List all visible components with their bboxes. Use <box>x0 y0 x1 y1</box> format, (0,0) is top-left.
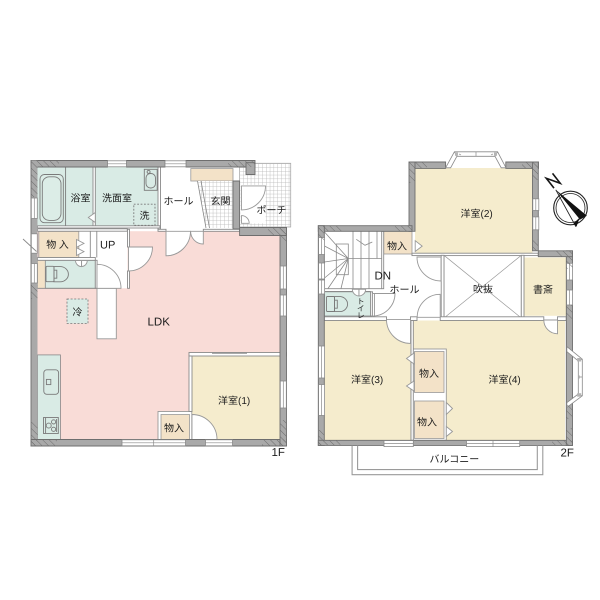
svg-text:ホール: ホール <box>164 197 194 208</box>
svg-text:洗: 洗 <box>140 210 150 222</box>
svg-text:DN: DN <box>375 271 392 283</box>
svg-text:物入: 物入 <box>46 239 71 251</box>
svg-text:ホール: ホール <box>390 285 420 296</box>
svg-text:物入: 物入 <box>164 423 184 435</box>
svg-text:浴室: 浴室 <box>71 193 91 205</box>
svg-text:ポーチ: ポーチ <box>257 205 287 217</box>
svg-text:物入: 物入 <box>387 241 407 253</box>
svg-text:玄関: 玄関 <box>211 196 231 208</box>
svg-text:洋室(2): 洋室(2) <box>461 208 493 220</box>
svg-text:LDK: LDK <box>148 317 171 329</box>
svg-text:物入: 物入 <box>417 417 437 429</box>
svg-text:物入: 物入 <box>419 368 439 380</box>
svg-text:洋室(1): 洋室(1) <box>218 395 250 407</box>
svg-text:UP: UP <box>100 240 115 252</box>
svg-text:レ: レ <box>357 311 365 320</box>
svg-text:書斎: 書斎 <box>533 284 553 296</box>
svg-text:1F: 1F <box>272 447 285 459</box>
svg-text:冷: 冷 <box>73 307 83 319</box>
svg-text:2F: 2F <box>561 448 574 460</box>
svg-text:洋室(4): 洋室(4) <box>489 374 521 386</box>
svg-text:吹抜: 吹抜 <box>473 284 493 296</box>
svg-text:バルコニー: バルコニー <box>430 454 480 466</box>
svg-text:洗面室: 洗面室 <box>102 193 132 205</box>
svg-text:洋室(3): 洋室(3) <box>351 374 383 386</box>
